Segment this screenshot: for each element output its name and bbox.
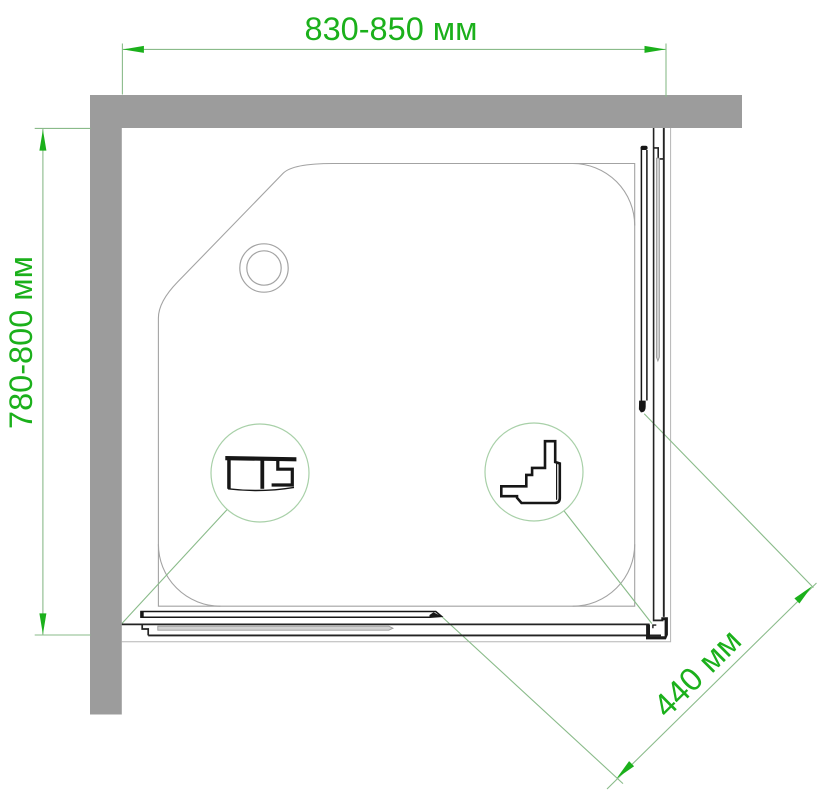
svg-text:830-850 мм: 830-850 мм: [305, 11, 478, 47]
svg-text:780-800 мм: 780-800 мм: [3, 256, 39, 429]
